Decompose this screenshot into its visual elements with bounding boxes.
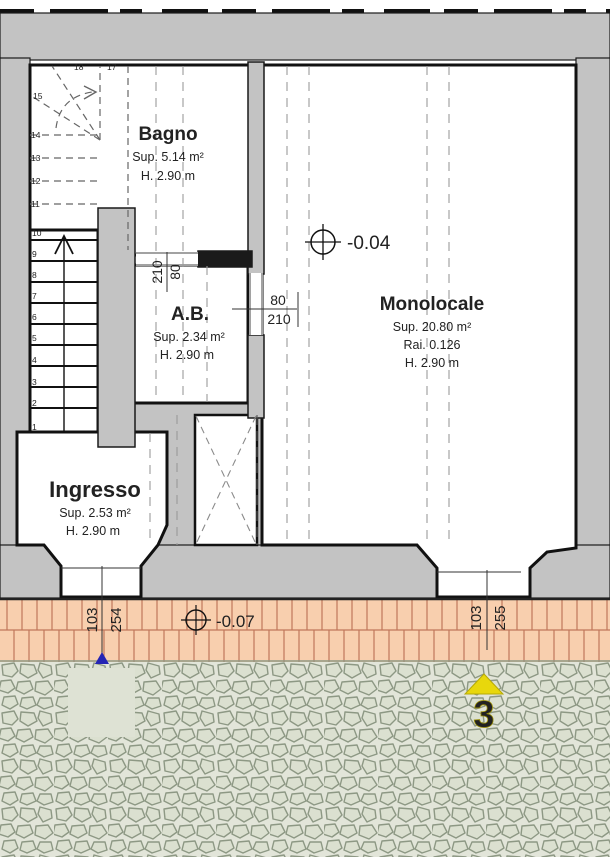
plain-patch bbox=[68, 668, 135, 737]
direction-arrow-label: 3 bbox=[473, 694, 494, 736]
svg-text:6: 6 bbox=[32, 312, 37, 322]
svg-text:4: 4 bbox=[32, 355, 37, 365]
room-sup-ingresso: Sup. 2.53 m² bbox=[59, 506, 131, 520]
svg-text:18: 18 bbox=[74, 62, 84, 72]
room-h-bagno: H. 2.90 m bbox=[141, 169, 195, 183]
level-value-exterior: -0.07 bbox=[216, 612, 255, 631]
room-h-ab: H. 2.90 m bbox=[160, 348, 214, 362]
svg-text:11: 11 bbox=[31, 199, 40, 209]
svg-text:10: 10 bbox=[32, 228, 42, 238]
room-label-bagno: Bagno bbox=[138, 124, 197, 145]
room-rai-monolocale: Rai. 0.126 bbox=[404, 338, 461, 352]
wall-stair-ab bbox=[98, 208, 135, 447]
level-value-interior: -0.04 bbox=[347, 233, 391, 254]
door-height-bagno-ab: 210 bbox=[149, 260, 165, 284]
room-h-monolocale: H. 2.90 m bbox=[405, 356, 459, 370]
svg-text:1: 1 bbox=[32, 422, 37, 432]
wall-bagno-ab bbox=[198, 251, 252, 267]
room-label-ingresso: Ingresso bbox=[49, 477, 141, 502]
door-opening-ab-monolocale bbox=[249, 273, 263, 335]
entry-monolocale-width: 103 bbox=[468, 605, 485, 630]
room-h-ingresso: H. 2.90 m bbox=[66, 524, 120, 538]
room-sup-bagno: Sup. 5.14 m² bbox=[132, 150, 204, 164]
room-sup-monolocale: Sup. 20.80 m² bbox=[393, 320, 472, 334]
svg-text:2: 2 bbox=[32, 398, 37, 408]
entry-monolocale-height: 255 bbox=[492, 605, 509, 630]
wall-right-column bbox=[576, 58, 610, 598]
svg-text:8: 8 bbox=[32, 270, 37, 280]
svg-text:17: 17 bbox=[107, 62, 117, 72]
wall-top-band bbox=[0, 13, 610, 60]
room-label-ab: A.B. bbox=[171, 304, 209, 325]
svg-text:14: 14 bbox=[31, 130, 41, 140]
room-sup-ab: Sup. 2.34 m² bbox=[153, 330, 225, 344]
svg-text:12: 12 bbox=[31, 176, 41, 186]
svg-text:3: 3 bbox=[32, 377, 37, 387]
floor-plan-drawing: 1 2 3 4 5 6 7 8 9 10 11 12 13 bbox=[0, 0, 610, 857]
svg-text:13: 13 bbox=[31, 153, 41, 163]
entry-ingresso-width: 103 bbox=[84, 607, 101, 632]
svg-text:15: 15 bbox=[33, 91, 43, 101]
door-height-ab-monolocale: 210 bbox=[267, 311, 291, 327]
wall-ab-monolocale-upper bbox=[248, 62, 264, 274]
room-label-monolocale: Monolocale bbox=[380, 294, 485, 315]
floor-plan-canvas: 1 2 3 4 5 6 7 8 9 10 11 12 13 bbox=[0, 0, 610, 857]
cobblestone-area bbox=[0, 662, 610, 857]
entry-ingresso-height: 254 bbox=[108, 607, 125, 632]
wall-ab-monolocale-lower bbox=[248, 335, 264, 418]
svg-text:5: 5 bbox=[32, 333, 37, 343]
svg-text:7: 7 bbox=[32, 291, 37, 301]
door-width-bagno-ab: 80 bbox=[167, 264, 183, 280]
svg-text:9: 9 bbox=[32, 249, 37, 259]
door-width-ab-monolocale: 80 bbox=[270, 292, 286, 308]
